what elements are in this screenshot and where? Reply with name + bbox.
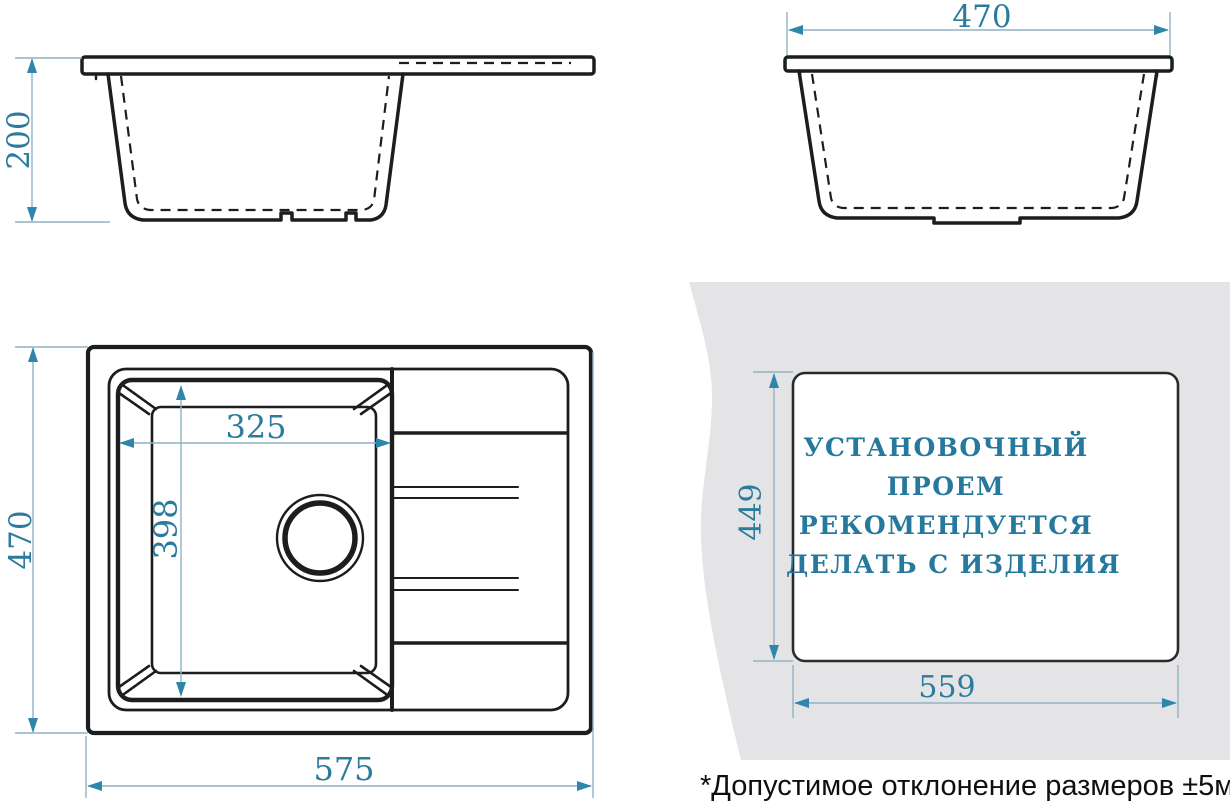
dim-470-front: 470 [952, 0, 1011, 35]
arrow-up-icon [27, 58, 37, 73]
side-view: 200 [1, 57, 594, 222]
front-width-dimension: 470 [787, 0, 1170, 57]
drawing-canvas: 449 559 200 [0, 0, 1230, 810]
arrow-left-icon [87, 781, 102, 791]
dim-200: 200 [1, 110, 37, 169]
arrow-up-icon [28, 347, 38, 362]
plan-height-dimension: 470 [3, 347, 88, 733]
plan-view: 325 398 470 575 [3, 347, 593, 798]
installation-note-line: ДЕЛАТЬ С ИЗДЕЛИЯ [786, 545, 1106, 584]
installation-note: УСТАНОВОЧНЫЙ ПРОЕМ РЕКОМЕНДУЕТСЯ ДЕЛАТЬ … [786, 428, 1106, 584]
installation-note-line: УСТАНОВОЧНЫЙ [786, 428, 1106, 467]
dim-470-plan: 470 [3, 510, 39, 569]
dim-398: 398 [147, 498, 185, 559]
side-bowl-hidden-line [121, 76, 389, 210]
dim-559: 559 [918, 670, 975, 705]
front-rim [785, 57, 1172, 71]
dim-325: 325 [225, 408, 286, 446]
tolerance-footnote: *Допустимое отклонение размеров ±5мм [700, 770, 1230, 803]
side-rim [82, 57, 594, 74]
front-bowl-outline [799, 71, 1157, 223]
side-bowl-outline [108, 74, 403, 220]
arrow-left-icon [788, 25, 803, 35]
sink-dimension-drawing: 449 559 200 [0, 0, 1230, 810]
installation-note-line: РЕКОМЕНДУЕТСЯ [786, 506, 1106, 545]
dim-449: 449 [734, 483, 769, 540]
arrow-down-icon [28, 718, 38, 733]
arrow-right-icon [1154, 25, 1169, 35]
installation-note-line: ПРОЕМ [786, 467, 1106, 506]
front-bowl-hidden-line [812, 74, 1144, 208]
dim-575: 575 [313, 750, 374, 788]
side-depth-dimension: 200 [1, 58, 110, 222]
arrow-down-icon [27, 207, 37, 222]
arrow-right-icon [577, 781, 592, 791]
front-view: 470 [785, 0, 1172, 223]
